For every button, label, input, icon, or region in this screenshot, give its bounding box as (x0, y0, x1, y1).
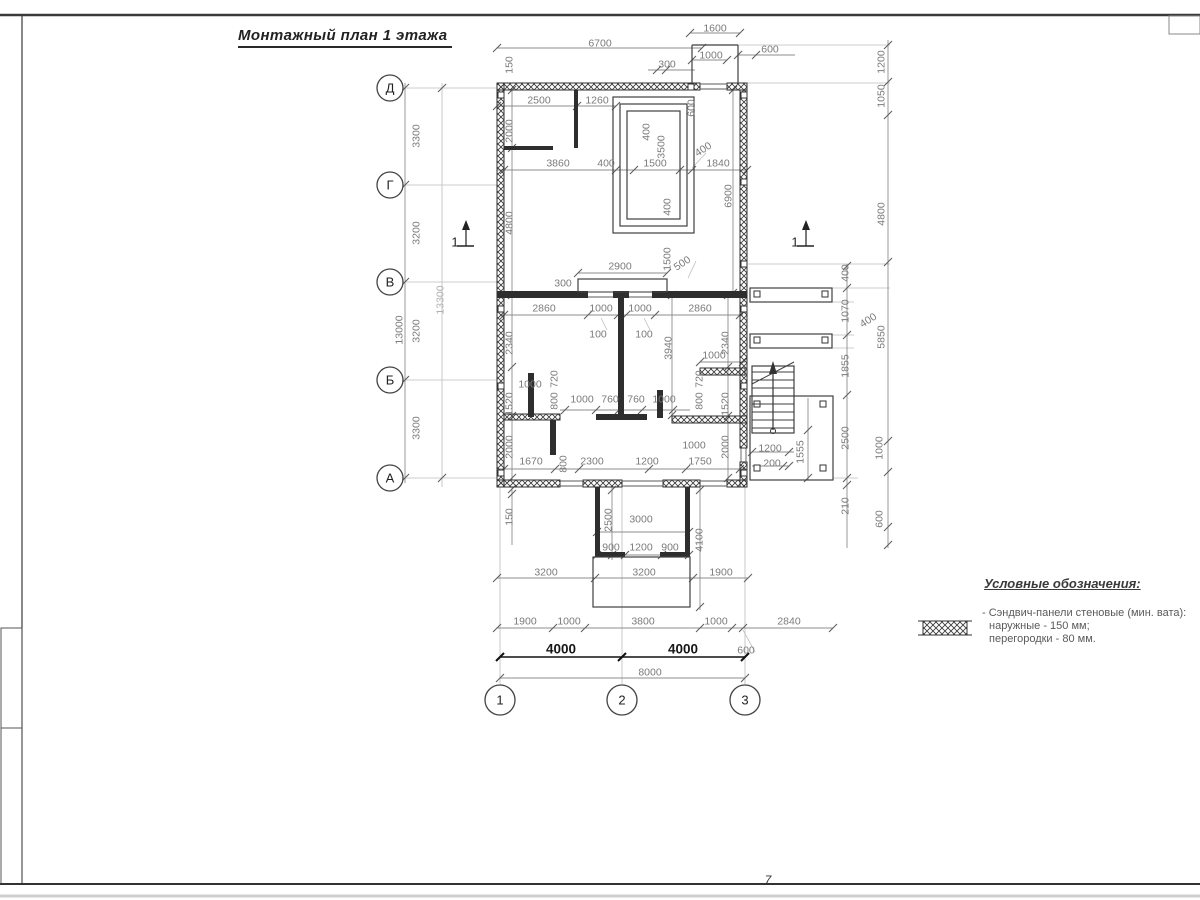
dim-label: 3200 (632, 567, 656, 579)
dim-label: 6900 (723, 184, 735, 208)
legend-text: - Сэндвич-панели стеновые (мин. вата): н… (982, 607, 1186, 647)
dim-label: 400 (641, 123, 653, 141)
dim-label: 1840 (706, 158, 730, 170)
dim-label: 3000 (629, 514, 653, 526)
wall-panel-symbol-icon (918, 616, 972, 640)
sheet-margin-box (1, 628, 22, 728)
sheet-margin-box (1, 728, 22, 884)
wall-solid (504, 146, 553, 150)
dim-label: 2900 (608, 261, 632, 273)
drawing-title: Монтажный план 1 этажа (238, 27, 452, 48)
dim-label: 100 (635, 329, 653, 341)
dim-label: 1600 (703, 23, 727, 35)
axis-row-label: Б (386, 373, 395, 388)
outline (750, 334, 832, 348)
legend: Условные обозначения: - Сэндвич-панели с… (918, 576, 1200, 647)
dim-label: 4800 (876, 202, 888, 226)
dim-label: 1050 (876, 84, 888, 108)
fixing-square (741, 306, 747, 312)
dim-label: 800 (694, 392, 706, 410)
dim-label: 3200 (411, 319, 423, 343)
dim-label: 500 (672, 254, 693, 274)
dim-label: 720 (549, 370, 561, 388)
dim-label: 600 (874, 510, 886, 528)
fixing-square (754, 291, 760, 297)
wall-solid (595, 487, 600, 557)
dim-label: 400 (693, 140, 714, 160)
axis-row-label: В (386, 275, 395, 290)
outline (578, 279, 667, 292)
outline (593, 557, 690, 607)
dim-label: 13300 (435, 285, 447, 314)
dim-label: 3860 (546, 158, 570, 170)
fixing-square (754, 337, 760, 343)
dim-label: 1000 (874, 436, 886, 460)
dim-label: 800 (549, 392, 561, 410)
dim-label: 1520 (720, 392, 732, 416)
dim-label: 150 (504, 56, 516, 74)
dim-label: 1000 (652, 394, 676, 406)
dim-label: 3940 (663, 336, 675, 360)
dim-label: 760 (601, 394, 619, 406)
legend-line: наружные - 150 мм; (989, 620, 1186, 633)
dim-label: 4100 (694, 528, 706, 552)
dim-label: 2840 (777, 616, 801, 628)
dim-label: 2000 (504, 119, 516, 143)
dim-label: 3500 (656, 135, 668, 159)
legend-title: Условные обозначения: (984, 576, 1200, 591)
section-arrow-icon (802, 220, 810, 230)
dim-label: 1070 (840, 299, 852, 323)
dim-label: 600 (686, 99, 698, 117)
dim-label: 300 (554, 278, 572, 290)
dim-label: 2300 (580, 456, 604, 468)
dim-label: 600 (737, 645, 755, 657)
dim-label: 1000 (570, 394, 594, 406)
dim-label: 3200 (534, 567, 558, 579)
drawing-sheet: 711ДГВБА12316006700100060030015025001260… (0, 0, 1200, 900)
dim-label: 2500 (527, 95, 551, 107)
dim-label: 1000 (557, 616, 581, 628)
wall-hatched (497, 83, 700, 90)
dim-label: 4000 (668, 642, 698, 657)
wall-solid (685, 487, 690, 557)
dim-label: 1900 (709, 567, 733, 579)
fixing-square (498, 470, 504, 476)
fixing-square (498, 383, 504, 389)
wall-hatched (663, 480, 700, 487)
dim-label: 1260 (585, 95, 609, 107)
dim-label: 1000 (702, 350, 726, 362)
dim-label: 210 (840, 497, 852, 515)
dim-label: 3300 (411, 416, 423, 440)
wall-solid (618, 298, 624, 416)
dim-label: 400 (840, 264, 852, 282)
fixing-square (498, 92, 504, 98)
fixing-square (741, 179, 747, 185)
dim-label: 400 (662, 198, 674, 216)
axis-col-label: 2 (618, 693, 625, 708)
fixing-square (741, 261, 747, 267)
dim-label: 1520 (504, 392, 516, 416)
fixing-square (754, 465, 760, 471)
dim-label: 600 (761, 44, 779, 56)
dim-label: 1200 (629, 542, 653, 554)
floor-plan-drawing: 711ДГВБА12316006700100060030015025001260… (0, 0, 1200, 900)
dim-label: 1000 (682, 440, 706, 452)
fixing-square (741, 470, 747, 476)
dim-label: 1200 (758, 443, 782, 455)
section-mark-label: 1 (791, 235, 798, 250)
dim-label: 1200 (876, 50, 888, 74)
dim-label: 1555 (795, 440, 807, 464)
legend-line: перегородки - 80 мм. (989, 633, 1186, 646)
sheet-corner-box (1169, 16, 1200, 34)
axis-row-label: Г (386, 178, 393, 193)
fixing-square (820, 401, 826, 407)
dim-label: 6700 (588, 38, 612, 50)
dim-label: 1000 (704, 616, 728, 628)
axis-row-label: Д (386, 81, 395, 96)
dim-label: 720 (694, 370, 706, 388)
dim-label: 2500 (840, 426, 852, 450)
page-mark: 7 (765, 873, 773, 887)
dim-label: 2860 (688, 303, 712, 315)
dim-label: 1000 (628, 303, 652, 315)
dim-label: 900 (661, 542, 679, 554)
dim-label: 1900 (513, 616, 537, 628)
wall-hatched (672, 416, 747, 423)
wall-solid (596, 414, 647, 420)
legend-item: - Сэндвич-панели стеновые (мин. вата): н… (918, 607, 1200, 647)
dim-label: 300 (658, 59, 676, 71)
wall-hatched (740, 90, 747, 448)
fixing-square (498, 306, 504, 312)
dim-label: 5850 (876, 325, 888, 349)
dim-label: 1500 (662, 247, 674, 271)
dim-label: 1670 (519, 456, 543, 468)
wall-solid (497, 291, 588, 298)
fixing-square (688, 84, 694, 90)
section-mark-label: 1 (451, 235, 458, 250)
wall-solid (550, 420, 556, 455)
dim-label: 800 (558, 455, 570, 473)
dim-label: 4000 (546, 642, 576, 657)
section-arrow-icon (462, 220, 470, 230)
fixing-square (741, 92, 747, 98)
dim-label: 1000 (518, 379, 542, 391)
axis-col-label: 1 (496, 693, 503, 708)
wall-hatched (497, 480, 560, 487)
dim-label: 8000 (638, 667, 662, 679)
dim-label: 2000 (720, 435, 732, 459)
dim-label: 400 (597, 158, 615, 170)
outline (750, 288, 832, 302)
wall-hatched (583, 480, 622, 487)
dim-label: 3200 (411, 221, 423, 245)
dim-label: 200 (763, 458, 781, 470)
dim-label: 1200 (635, 456, 659, 468)
dim-label: 150 (504, 508, 516, 526)
dim-label: 4800 (504, 211, 516, 235)
dim-label: 2860 (532, 303, 556, 315)
dim-label: 100 (589, 329, 607, 341)
dim-label: 900 (602, 542, 620, 554)
dim-label: 2500 (603, 508, 615, 532)
dim-label: 1855 (840, 354, 852, 378)
wall-hatched (727, 480, 747, 487)
wall-hatched (700, 368, 745, 375)
dim-label: 760 (627, 394, 645, 406)
dim-label: 1000 (699, 50, 723, 62)
stair-arrow-head (769, 361, 777, 374)
wall-solid (574, 90, 578, 148)
dim-label: 13000 (394, 315, 406, 344)
fixing-square (820, 465, 826, 471)
axis-row-label: А (386, 471, 395, 486)
wall-hatched (727, 83, 747, 90)
legend-line: - Сэндвич-панели стеновые (мин. вата): (982, 607, 1186, 620)
fixing-square (822, 337, 828, 343)
dim-label: 2000 (504, 435, 516, 459)
dim-label: 2340 (504, 331, 516, 355)
dim-label: 3800 (631, 616, 655, 628)
fixing-square (822, 291, 828, 297)
dim-label: 1750 (688, 456, 712, 468)
dim-label: 1000 (589, 303, 613, 315)
axis-col-label: 3 (741, 693, 748, 708)
dim-label: 3300 (411, 124, 423, 148)
fixing-square (741, 383, 747, 389)
